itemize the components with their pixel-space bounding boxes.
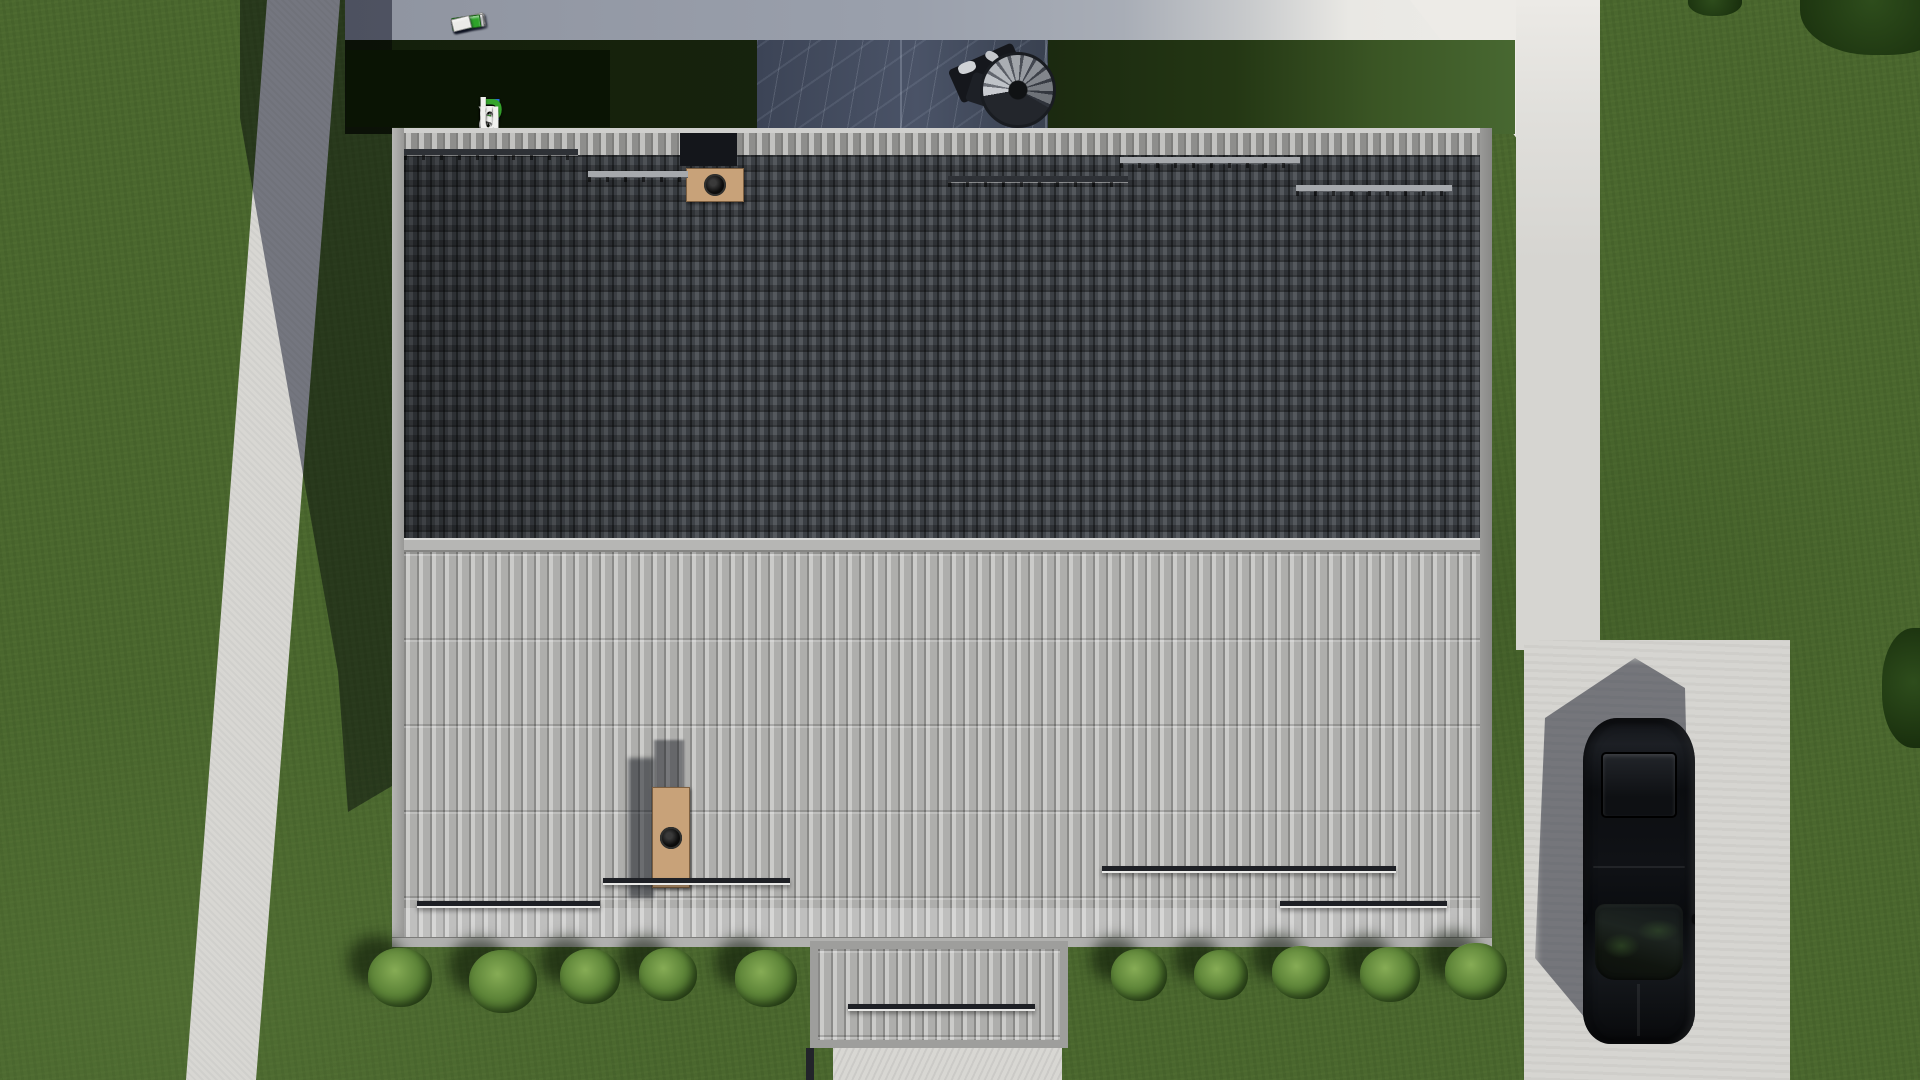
- car-sunroof: [1601, 752, 1677, 818]
- tree-foliage: [1882, 628, 1920, 748]
- tree-foliage: [1800, 0, 1920, 55]
- tree-foliage: [1688, 0, 1742, 16]
- aerial-house-render: FixPlans.ru: [0, 0, 1920, 1080]
- car-mirror-right: [1692, 914, 1695, 923]
- car-windshield: [1595, 904, 1683, 980]
- car-hood-line: [1637, 984, 1640, 1036]
- car-deck-line: [1593, 866, 1685, 868]
- car-mirror-left: [1583, 914, 1586, 923]
- car: [1583, 718, 1695, 1044]
